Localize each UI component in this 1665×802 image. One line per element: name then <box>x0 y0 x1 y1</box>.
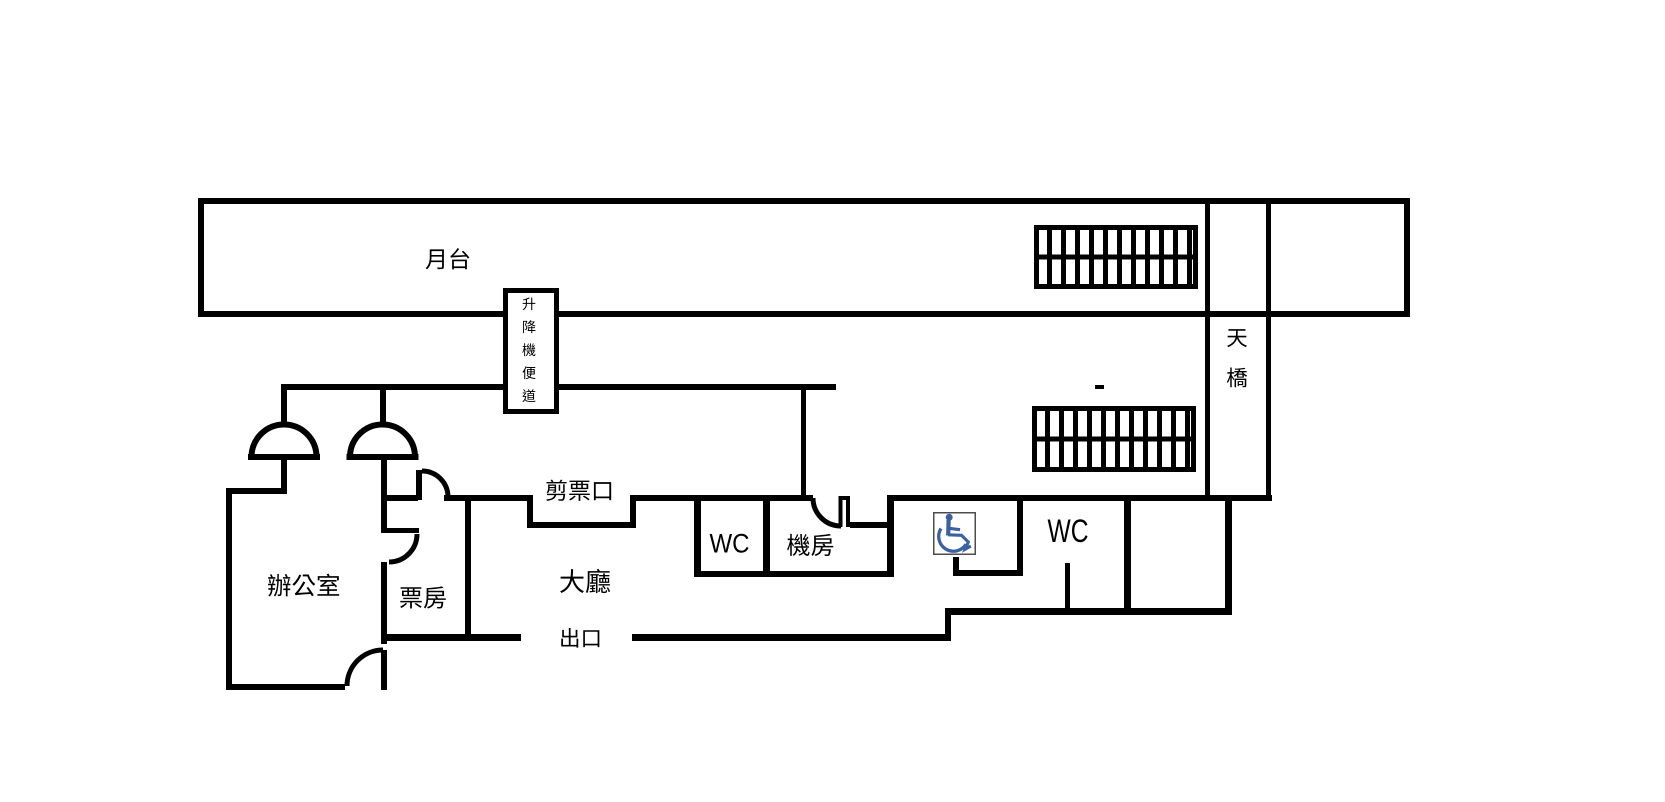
svg-text:WC: WC <box>1048 513 1089 549</box>
svg-text:WC: WC <box>710 529 750 559</box>
